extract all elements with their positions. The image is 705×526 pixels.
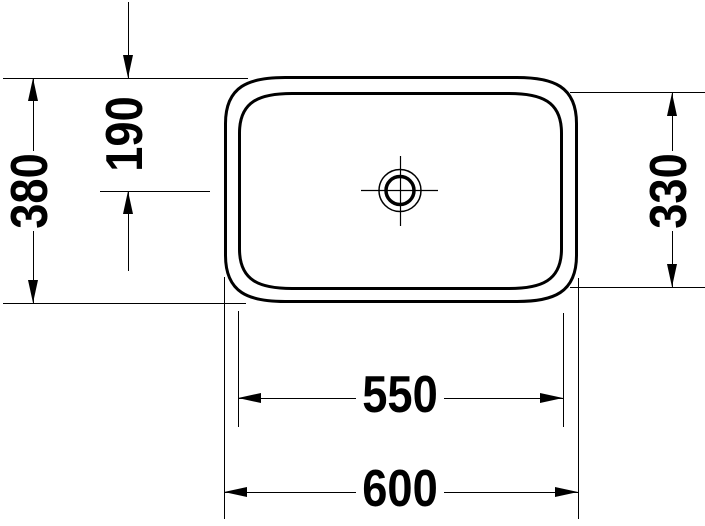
drain-offset-label: 190 (99, 96, 151, 171)
basin-inner-depth-label: 330 (643, 153, 695, 228)
overall-width-label: 600 (362, 463, 437, 515)
basin-inner-width-label: 550 (362, 369, 437, 421)
technical-drawing-canvas: 380 190 330 550 600 (0, 0, 705, 526)
washbasin-top-view (0, 0, 705, 526)
overall-depth-label: 380 (4, 153, 56, 228)
